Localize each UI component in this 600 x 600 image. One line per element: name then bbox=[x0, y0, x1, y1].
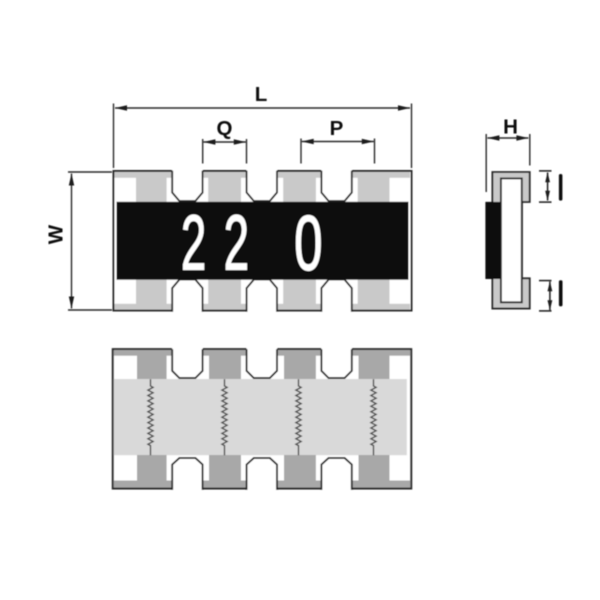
svg-text:Q: Q bbox=[217, 117, 233, 140]
svg-text:W: W bbox=[45, 224, 68, 244]
svg-text:0: 0 bbox=[294, 198, 322, 286]
svg-text:2: 2 bbox=[224, 198, 249, 286]
svg-text:P: P bbox=[330, 117, 344, 140]
svg-text:L: L bbox=[255, 83, 268, 106]
svg-text:2: 2 bbox=[181, 198, 206, 286]
svg-text:H: H bbox=[503, 116, 518, 139]
